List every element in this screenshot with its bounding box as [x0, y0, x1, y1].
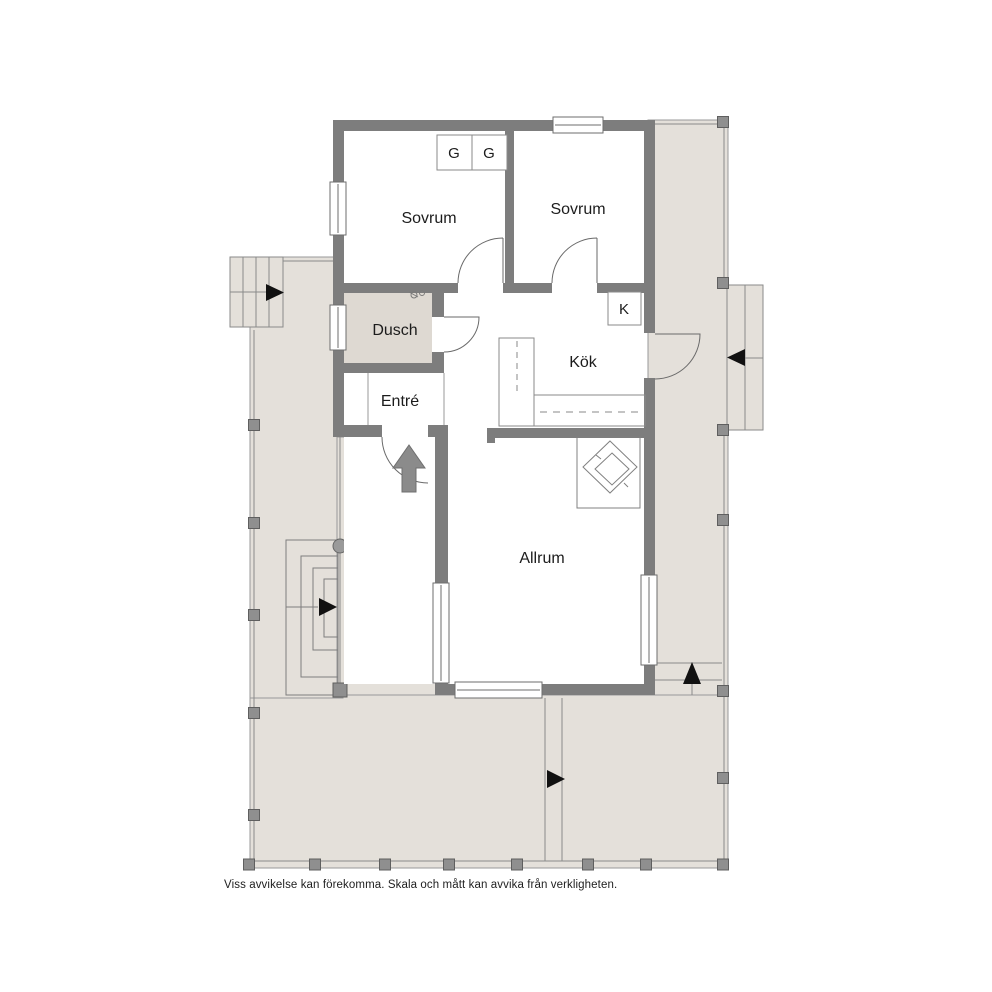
window-shower [330, 305, 346, 350]
deck-bottom [250, 695, 728, 868]
label-sovrum-left: Sovrum [401, 210, 456, 227]
window-bedroom-right-top [553, 117, 603, 133]
window-bedroom-left [330, 182, 346, 235]
porch-corner-post [333, 683, 347, 697]
disclaimer-text: Viss avvikelse kan förekomma. Skala och … [224, 879, 617, 891]
label-entre: Entré [381, 393, 419, 410]
window-allrum-east [641, 575, 657, 665]
label-wardrobe-right: G [483, 145, 495, 162]
label-kok: Kök [569, 354, 598, 371]
label-allrum: Allrum [519, 550, 564, 567]
label-dusch: Dusch [372, 322, 417, 339]
window-allrum-south [455, 682, 542, 698]
window-allrum-west [433, 583, 449, 683]
floorplan-drawing: Sovrum Sovrum Dusch Entré Kök Allrum G G… [0, 0, 992, 992]
label-sovrum-right: Sovrum [550, 201, 605, 218]
floorplan-page: Sovrum Sovrum Dusch Entré Kök Allrum G G… [0, 0, 992, 992]
label-fridge: K [619, 301, 629, 318]
label-wardrobe-left: G [448, 145, 460, 162]
